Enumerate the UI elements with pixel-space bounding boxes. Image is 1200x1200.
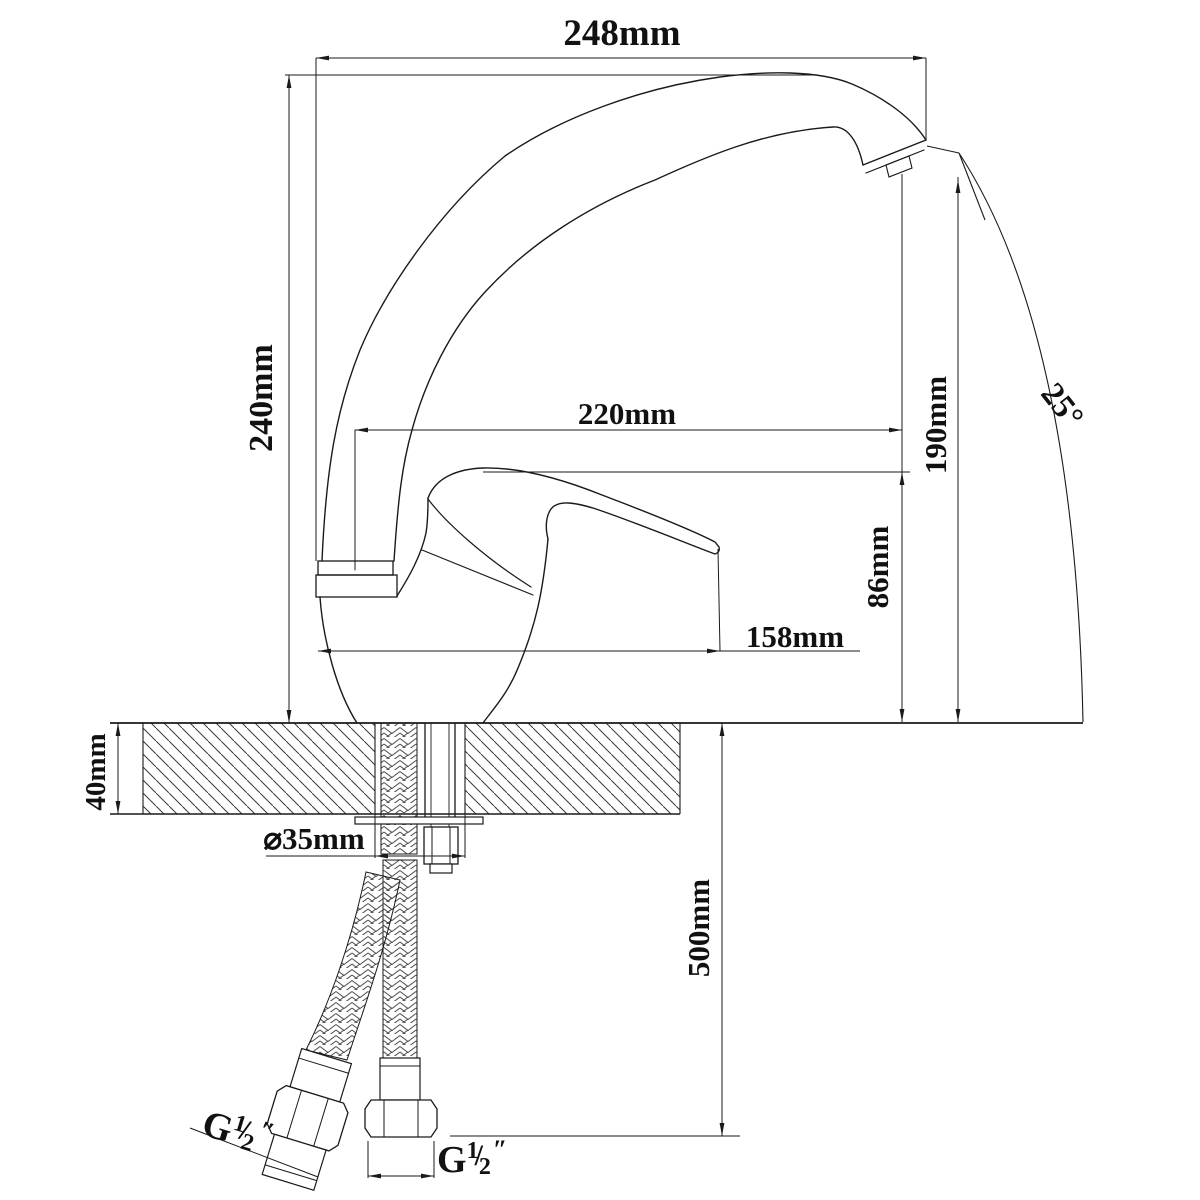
- body-neck-edge: [397, 498, 428, 596]
- collar-groove-lower: [422, 550, 533, 595]
- dimension-labels: 248mm 240mm 220mm 190mm 86mm 158mm 25° 4…: [80, 13, 1090, 1181]
- mounting-nut: [424, 827, 458, 873]
- ghost-tip-edge: [959, 153, 985, 220]
- fitting-right: [365, 1058, 437, 1137]
- dim-label-86: 86mm: [860, 526, 895, 609]
- ghost-tip-rim: [927, 146, 959, 153]
- handle-lever: [428, 468, 719, 554]
- dim-label-500: 500mm: [681, 879, 716, 977]
- mounting-stud: [425, 723, 455, 817]
- dim-label-40: 40mm: [80, 733, 112, 810]
- thread-label-right: G1/2″: [437, 1135, 507, 1181]
- dim-label-190: 190mm: [918, 376, 953, 474]
- spout-base-cap-lower: [316, 575, 397, 597]
- dim-label-158: 158mm: [746, 619, 844, 654]
- hose-column-braid: [381, 723, 417, 854]
- counter-hatch-left: [143, 723, 375, 814]
- spout-inner-curve: [394, 127, 863, 561]
- dim-label-240: 240mm: [243, 344, 280, 452]
- spout-outer-curve: [322, 73, 926, 561]
- faucet-dimension-drawing: 248mm 240mm 220mm 190mm 86mm 158mm 25° 4…: [0, 0, 1200, 1200]
- dimension-lines: [118, 58, 958, 1176]
- spout-aerator: [886, 156, 912, 177]
- mounting-stud-thread: [431, 723, 449, 827]
- countertop-section: [110, 723, 1083, 814]
- dim-label-248: 248mm: [563, 13, 680, 54]
- thread-label-left: G1/2″: [197, 1099, 278, 1164]
- dim-label-35: ⌀35mm: [263, 821, 364, 856]
- dim-label-220: 220mm: [578, 396, 676, 431]
- swing-arc: [959, 153, 1083, 722]
- extension-lines: [190, 58, 958, 1178]
- body-right-edge: [483, 539, 548, 723]
- fitting-right-hex-nut: [365, 1100, 437, 1137]
- technical-drawing-canvas: 248mm 240mm 220mm 190mm 86mm 158mm 25° 4…: [0, 0, 1200, 1200]
- counter-hatch-right: [465, 723, 680, 814]
- body-left-edge: [320, 597, 357, 723]
- dim-label-25deg: 25°: [1033, 377, 1090, 436]
- mounting-washer-plate: [355, 817, 483, 824]
